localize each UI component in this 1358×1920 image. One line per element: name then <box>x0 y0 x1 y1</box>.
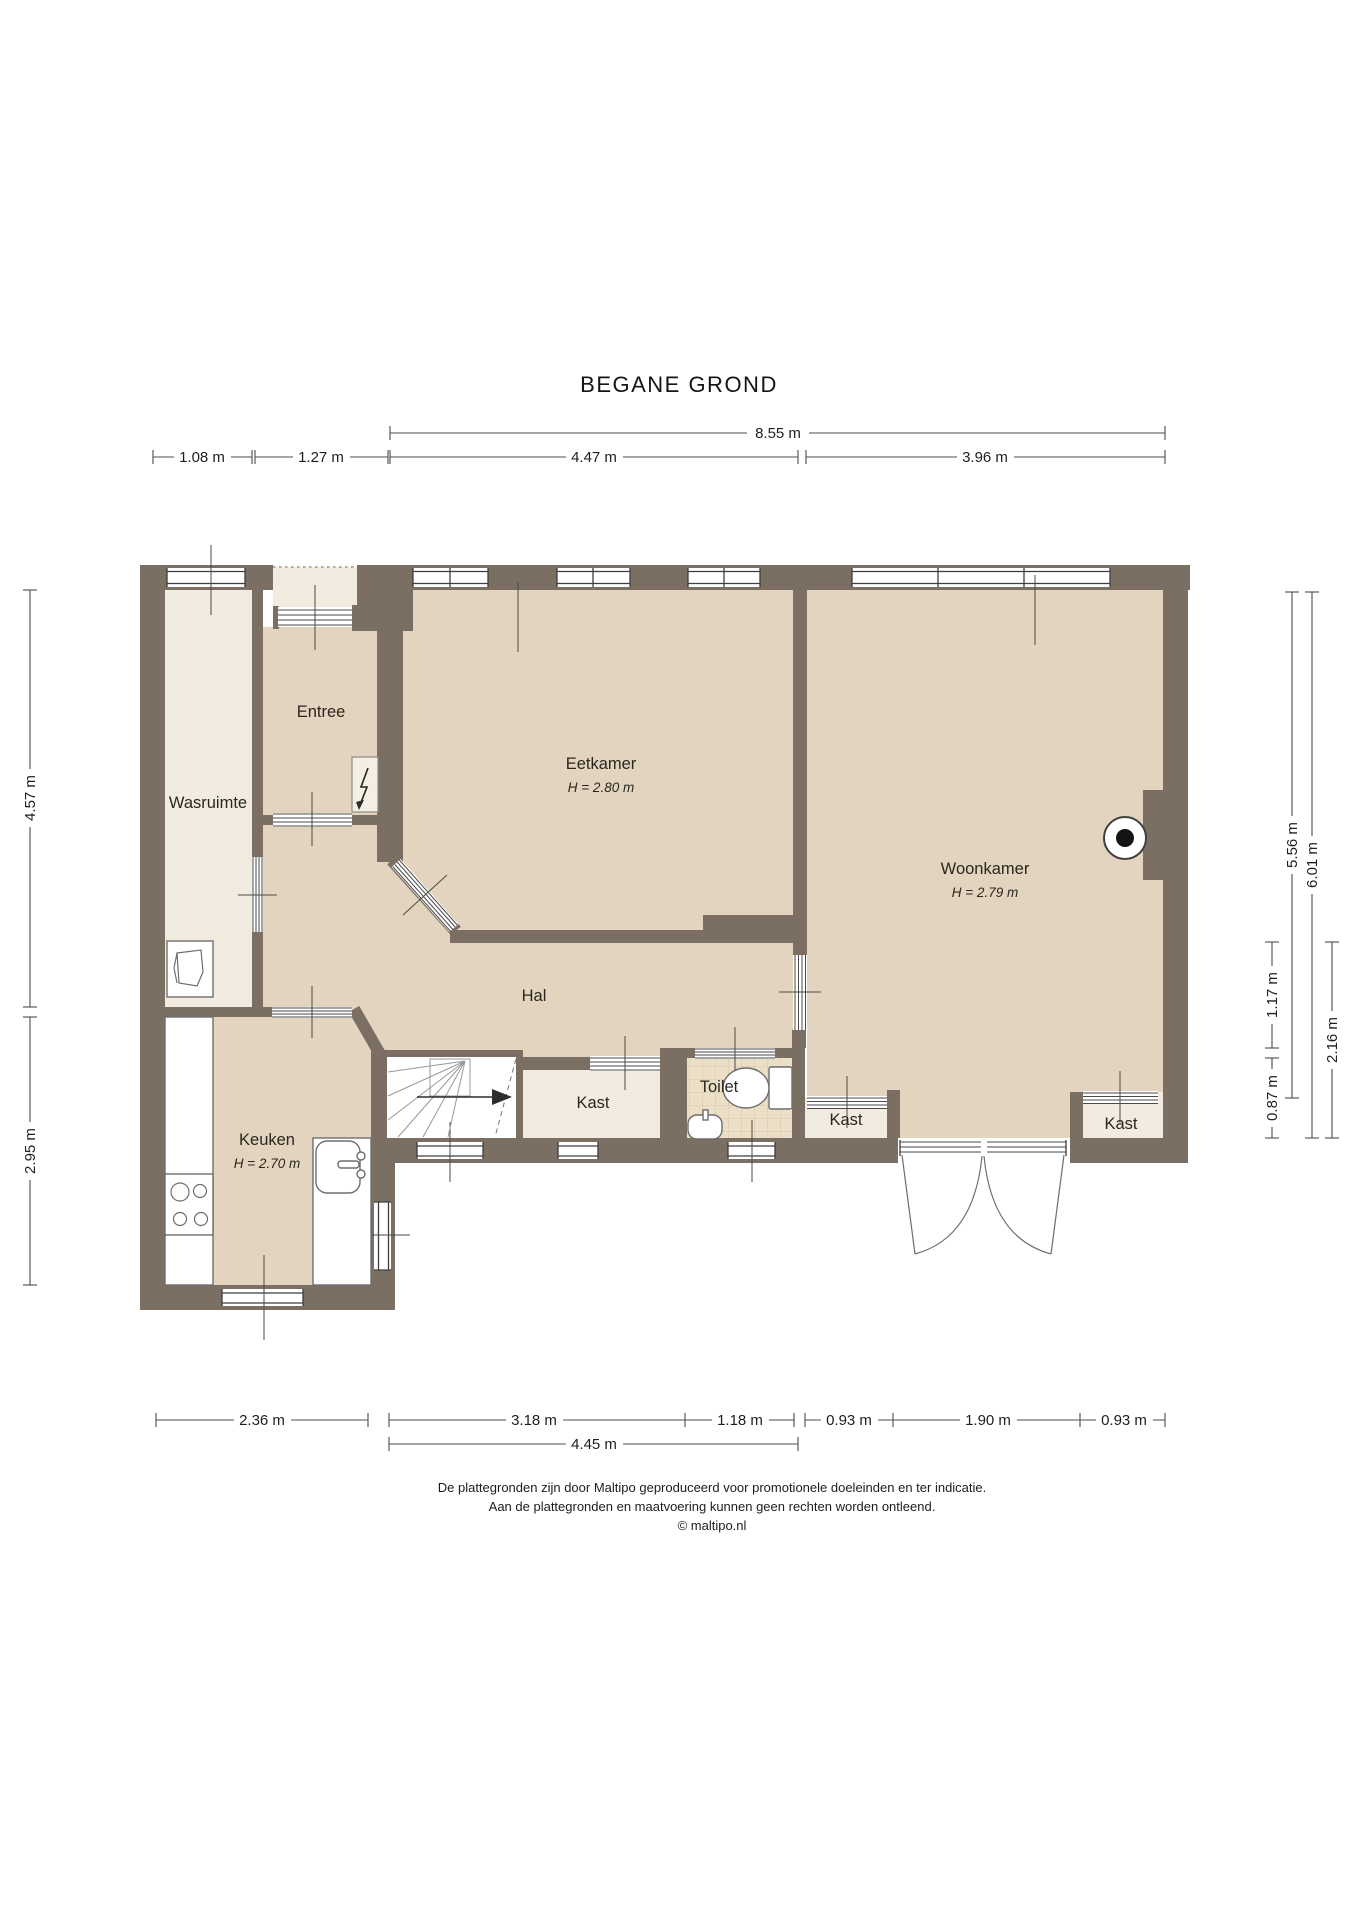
svg-text:2.16 m: 2.16 m <box>1324 1017 1341 1063</box>
meter-cabinet-icon <box>352 757 378 812</box>
svg-text:3.18 m: 3.18 m <box>511 1412 557 1429</box>
dim-top-3: 4.47 m <box>390 448 798 466</box>
window-keuken-bottom-icon <box>222 1289 303 1306</box>
floorplan-svg: Wasruimte Entree Eetkamer H = 2.80 m Woo… <box>0 0 1358 1920</box>
kitchen-counter-left <box>165 1017 213 1285</box>
dim-top-4: 3.96 m <box>806 448 1165 466</box>
dim-left-1: 4.57 m <box>21 590 39 1007</box>
svg-text:2.95 m: 2.95 m <box>22 1128 39 1174</box>
dim-right-2-16: 2.16 m <box>1323 942 1341 1138</box>
svg-text:1.90 m: 1.90 m <box>965 1412 1011 1429</box>
dim-bottom-6: 0.93 m <box>1080 1411 1165 1429</box>
dim-bottom-5: 1.90 m <box>893 1411 1080 1429</box>
label-woonkamer-height: H = 2.79 m <box>952 885 1018 900</box>
label-entree: Entree <box>297 703 346 721</box>
label-toilet: Toilet <box>700 1078 739 1096</box>
svg-text:6.01 m: 6.01 m <box>1304 842 1321 888</box>
french-doors-icon <box>898 1138 1070 1254</box>
label-keuken: Keuken <box>239 1131 295 1149</box>
svg-text:1.17 m: 1.17 m <box>1264 972 1281 1018</box>
svg-text:1.08 m: 1.08 m <box>179 449 225 466</box>
label-keuken-height: H = 2.70 m <box>234 1156 300 1171</box>
svg-text:8.55 m: 8.55 m <box>755 425 801 442</box>
label-hal: Hal <box>522 987 547 1005</box>
svg-text:4.45 m: 4.45 m <box>571 1436 617 1453</box>
flue-outlet-icon <box>1104 817 1146 859</box>
window-eetkamer-2-icon <box>557 568 630 587</box>
footer-disclaimer: De plattegronden zijn door Maltipo gepro… <box>66 1479 1358 1536</box>
label-eetkamer: Eetkamer <box>566 755 637 773</box>
window-keuken-right-icon <box>374 1202 391 1270</box>
dim-right-5-56: 5.56 m <box>1283 592 1301 1098</box>
dim-bottom-3: 1.18 m <box>685 1411 794 1429</box>
svg-text:0.93 m: 0.93 m <box>826 1412 872 1429</box>
label-woonkamer: Woonkamer <box>941 860 1030 878</box>
window-eetkamer-3-icon <box>688 568 760 587</box>
dim-top-total: 8.55 m <box>390 424 1165 442</box>
footer-line-1: De plattegronden zijn door Maltipo gepro… <box>66 1479 1358 1498</box>
dim-bottom-2: 3.18 m <box>389 1411 685 1429</box>
svg-text:0.93 m: 0.93 m <box>1101 1412 1147 1429</box>
svg-text:5.56 m: 5.56 m <box>1284 822 1301 868</box>
svg-text:2.36 m: 2.36 m <box>239 1412 285 1429</box>
label-eetkamer-height: H = 2.80 m <box>568 780 634 795</box>
svg-text:3.96 m: 3.96 m <box>962 449 1008 466</box>
dim-top-1: 1.08 m <box>153 448 252 466</box>
dim-right-0-87: 0.87 m <box>1263 1058 1281 1138</box>
window-woonkamer-icon <box>852 568 1110 587</box>
stove-icon <box>165 1174 213 1235</box>
label-kast-woonkamer-links: Kast <box>829 1111 862 1129</box>
svg-text:1.27 m: 1.27 m <box>298 449 344 466</box>
kitchen-sink-icon <box>316 1141 365 1193</box>
footer-line-2: Aan de plattegronden en maatvoering kunn… <box>66 1498 1358 1517</box>
floorplan-page: BEGANE GROND <box>0 0 1358 1920</box>
dim-top-2: 1.27 m <box>255 448 388 466</box>
svg-text:1.18 m: 1.18 m <box>717 1412 763 1429</box>
dim-right-6-01: 6.01 m <box>1303 592 1321 1138</box>
svg-text:4.47 m: 4.47 m <box>571 449 617 466</box>
window-eetkamer-1-icon <box>413 568 488 587</box>
dim-bottom-4: 0.93 m <box>805 1411 893 1429</box>
dim-bottom-sub: 4.45 m <box>389 1435 798 1453</box>
washing-machine-icon <box>167 941 213 997</box>
footer-copyright: © maltipo.nl <box>66 1517 1358 1536</box>
dim-right-1-17: 1.17 m <box>1263 942 1281 1048</box>
svg-text:0.87 m: 0.87 m <box>1264 1075 1281 1121</box>
dim-left-2: 2.95 m <box>21 1017 39 1285</box>
label-wasruimte: Wasruimte <box>169 794 247 812</box>
label-kast-woonkamer-rechts: Kast <box>1104 1115 1137 1133</box>
window-bottom-2-icon <box>558 1142 598 1159</box>
window-wasruimte-icon <box>167 568 245 587</box>
label-kast-hal: Kast <box>576 1094 609 1112</box>
svg-text:4.57 m: 4.57 m <box>22 775 39 821</box>
dim-bottom-1: 2.36 m <box>156 1411 368 1429</box>
